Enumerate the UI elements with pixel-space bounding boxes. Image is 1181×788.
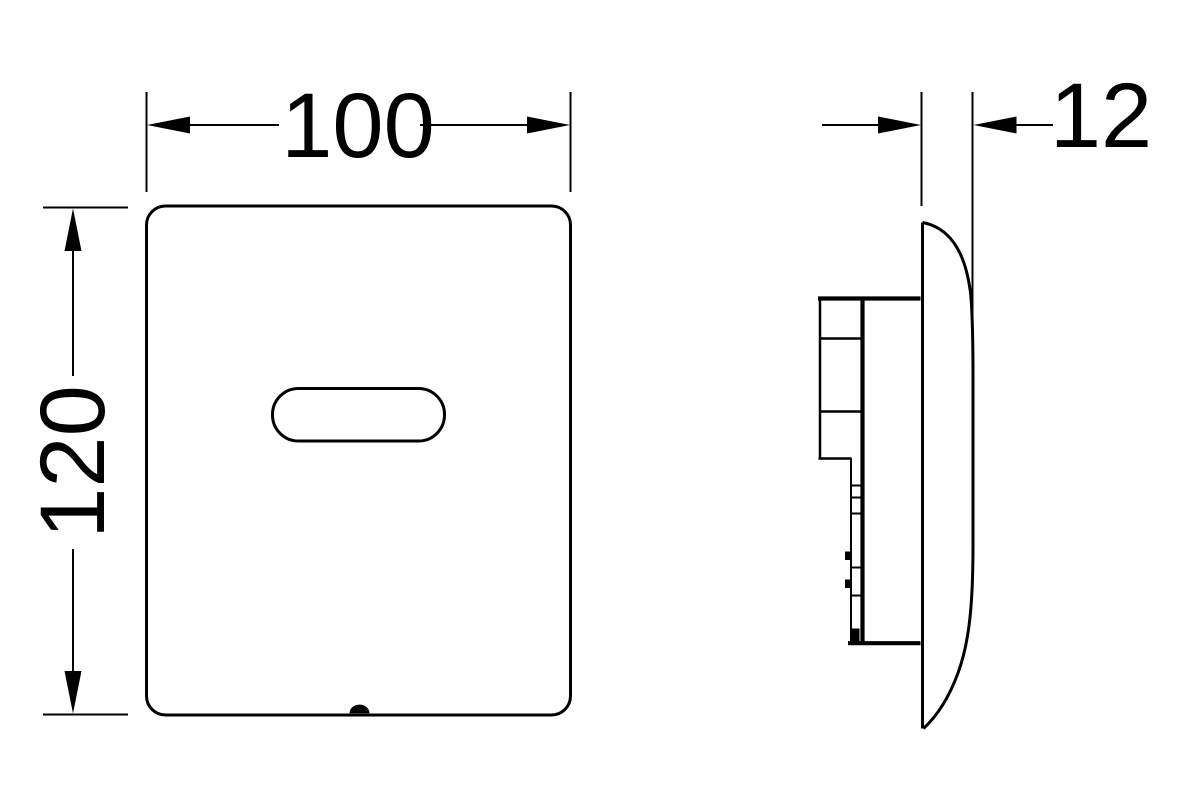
depth-value: 12 bbox=[1050, 65, 1152, 167]
indicator-dot bbox=[350, 705, 370, 714]
plate-outline bbox=[147, 206, 571, 715]
height-arrow-bottom bbox=[65, 671, 82, 714]
dimension-height: 120 bbox=[22, 208, 128, 715]
height-arrow-top bbox=[65, 209, 82, 252]
side-front-curve bbox=[923, 223, 974, 729]
sensor-window bbox=[273, 389, 445, 442]
strip-end-block bbox=[852, 629, 860, 642]
drawing-sheet: 100 120 12 bbox=[0, 0, 1181, 788]
height-value: 120 bbox=[22, 385, 124, 539]
strip-clip-1 bbox=[845, 552, 852, 561]
mounting-module bbox=[818, 297, 921, 646]
drawing-canvas: 100 120 12 bbox=[0, 0, 1181, 788]
front-view bbox=[147, 206, 571, 715]
dimension-width: 100 bbox=[147, 75, 571, 192]
depth-arrow-left bbox=[878, 117, 921, 134]
dimension-depth: 12 bbox=[822, 65, 1152, 318]
width-arrow-left bbox=[147, 117, 190, 134]
depth-arrow-right bbox=[974, 117, 1017, 134]
width-value: 100 bbox=[281, 75, 435, 177]
width-arrow-right bbox=[527, 117, 570, 134]
strip-clip-2 bbox=[845, 580, 852, 589]
side-view bbox=[818, 223, 973, 729]
